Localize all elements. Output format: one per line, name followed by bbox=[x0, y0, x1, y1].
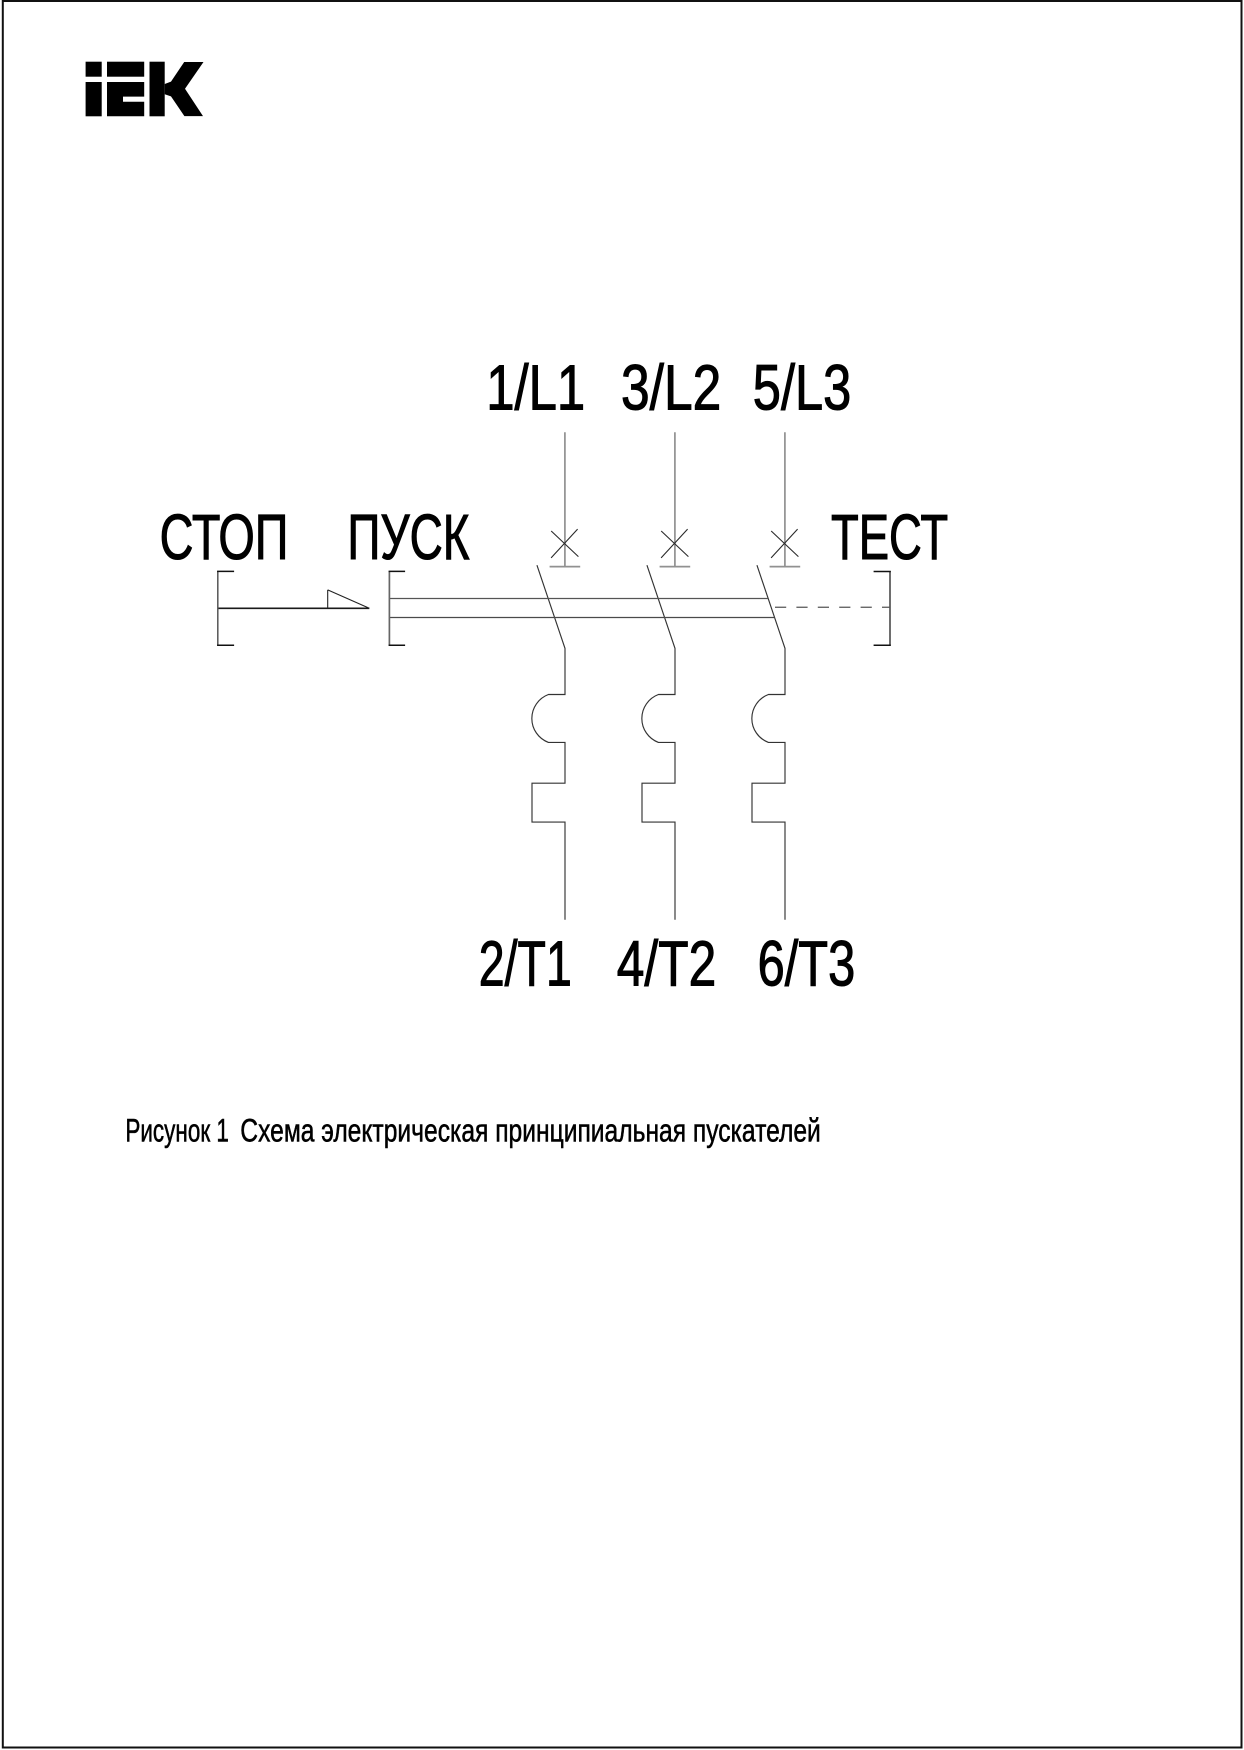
svg-text:ТЕСТ: ТЕСТ bbox=[831, 501, 948, 573]
svg-text:6/T3: 6/T3 bbox=[758, 927, 856, 999]
svg-text:2/T1: 2/T1 bbox=[479, 927, 572, 999]
svg-text:Рисунок 1: Рисунок 1 bbox=[125, 1113, 228, 1149]
svg-text:4/T2: 4/T2 bbox=[617, 927, 716, 999]
svg-text:СТОП: СТОП bbox=[160, 501, 289, 573]
svg-text:ПУСК: ПУСК bbox=[347, 501, 469, 573]
svg-text:5/L3: 5/L3 bbox=[753, 351, 852, 423]
svg-text:1/L1: 1/L1 bbox=[486, 351, 585, 423]
svg-text:Схема электрическая принципиал: Схема электрическая принципиальная пуска… bbox=[240, 1113, 821, 1149]
svg-text:3/L2: 3/L2 bbox=[621, 351, 721, 423]
